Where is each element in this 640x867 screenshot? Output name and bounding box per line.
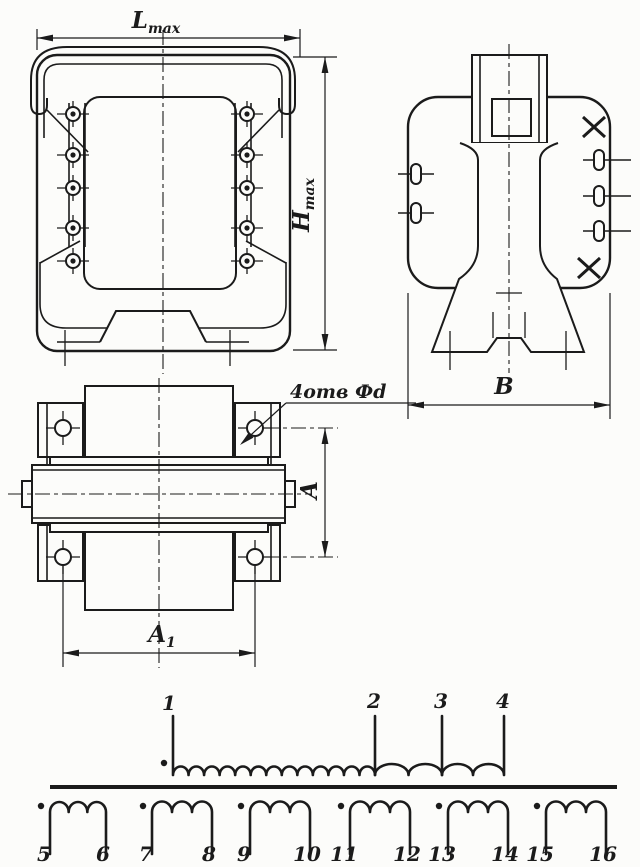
terminal-pins-front (57, 101, 263, 274)
terminal-12: 12 (393, 842, 421, 866)
dim-a-label: A (296, 481, 323, 501)
secondary-winding-3: 9 10 (237, 802, 321, 867)
dim-a1-label: A1 (146, 621, 176, 651)
terminal-16: 16 (589, 842, 617, 866)
holes-note: 4отв Фd (290, 381, 386, 403)
secondary-winding-2: 7 8 (139, 802, 216, 867)
terminal-13: 13 (428, 842, 456, 866)
terminal-15: 15 (526, 842, 554, 866)
terminal-5: 5 (37, 842, 51, 866)
secondary-winding-5: 13 14 (428, 802, 519, 867)
terminal-14: 14 (491, 842, 519, 866)
terminal-7: 7 (139, 842, 153, 866)
dim-hmax-label: Hmax (288, 177, 318, 233)
secondary-winding-4: 11 12 (330, 802, 421, 867)
dim-lmax: Lmax (37, 7, 300, 57)
terminal-3: 3 (434, 689, 448, 713)
primary-winding: 1 2 3 4 (161, 689, 510, 775)
dim-b-label: B (493, 373, 513, 400)
dim-lmax-label: Lmax (131, 7, 181, 37)
winding-schematic: 1 2 3 4 5 6 7 8 9 10 11 12 (37, 689, 617, 866)
bobbin-outline (84, 97, 236, 289)
terminal-10: 10 (293, 842, 321, 866)
polarity-dot-primary (161, 760, 167, 766)
drawing-svg: Lmax Hmax (0, 0, 640, 867)
terminal-11: 11 (330, 842, 358, 866)
secondary-winding-1: 5 6 (37, 802, 110, 866)
secondary-winding-6: 15 16 (526, 802, 617, 867)
transformer-drawing-sheet: Lmax Hmax (0, 0, 640, 867)
terminal-2: 2 (366, 689, 381, 713)
terminal-4: 4 (496, 689, 510, 713)
terminal-1: 1 (162, 691, 176, 715)
front-view (31, 30, 295, 374)
terminal-9: 9 (237, 842, 251, 866)
base-tab (100, 311, 206, 342)
side-view (398, 44, 631, 373)
terminal-8: 8 (201, 842, 216, 866)
clamp-window (492, 99, 531, 136)
terminal-6: 6 (96, 842, 110, 866)
